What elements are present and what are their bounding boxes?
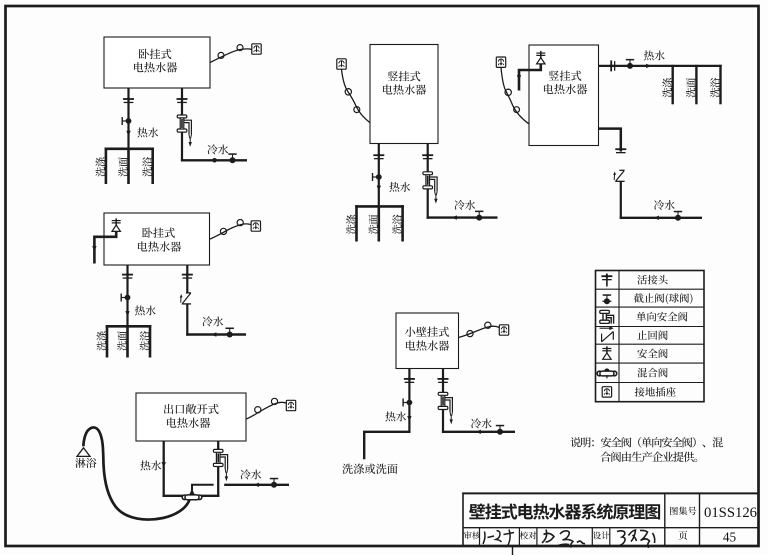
svg-text:01SS126: 01SS126 — [704, 505, 757, 521]
svg-text:45: 45 — [723, 530, 737, 545]
